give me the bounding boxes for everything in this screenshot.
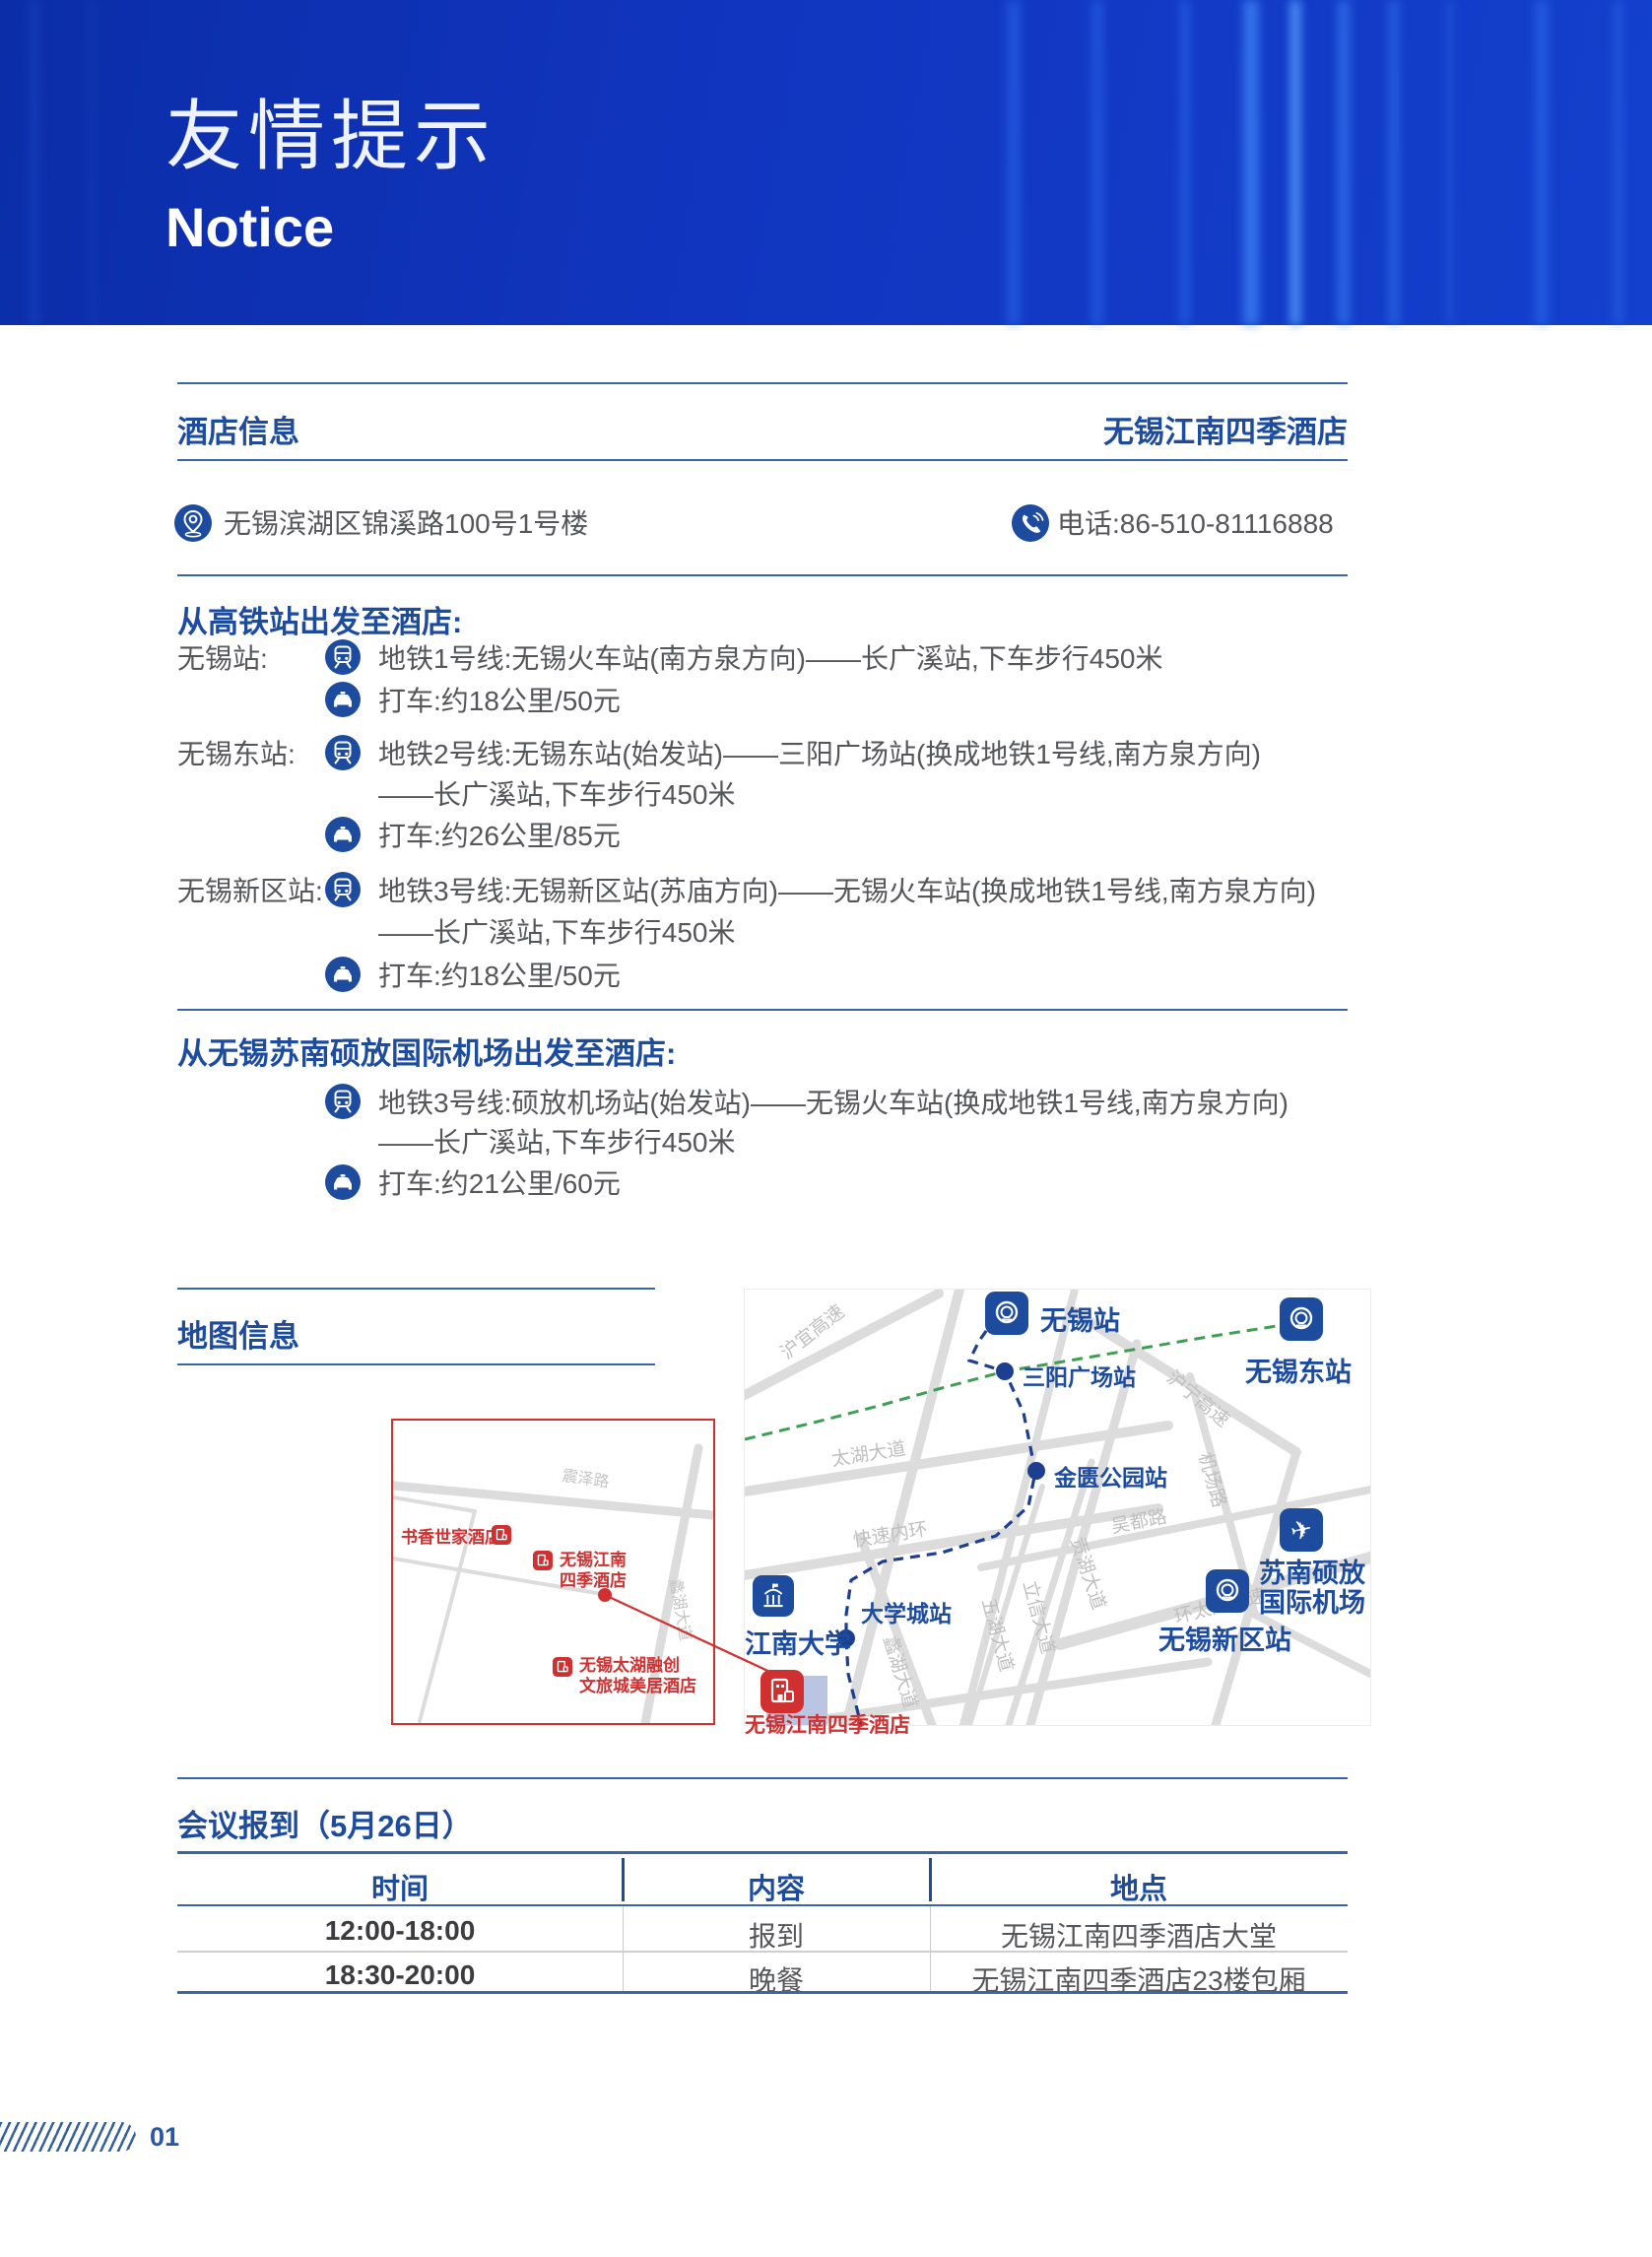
poi-label: 四季酒店 [560,1570,627,1591]
divider [177,1288,655,1290]
railway-station-icon [1206,1569,1249,1613]
university-icon [753,1575,794,1617]
table-header-border [177,1904,1348,1906]
banner-streak [1091,0,1103,325]
station-label: 金匮公园站 [1054,1459,1167,1493]
banner-streak [1535,0,1549,325]
route-step: 地铁3号线:硕放机场站(始发站)——无锡火车站(换成地铁1号线,南方泉方向) [378,1086,1289,1121]
table-cell: 报到 [623,1915,930,1955]
poi-label: 书香世家酒店 [401,1527,501,1548]
banner-streak [1243,0,1259,325]
railway-station-icon [985,1292,1028,1335]
route-step: ——长广溪站,下车步行450米 [378,1125,736,1161]
station-name: 无锡东站: [177,737,296,772]
airplane-icon: ✈ [1280,1508,1323,1552]
divider [177,382,1348,384]
banner-streak [89,0,95,325]
divider [177,1777,1348,1779]
table-cell: 12:00-18:00 [177,1915,623,1947]
table-cell: 18:30-20:00 [177,1959,623,1991]
page-number: 01 [150,2122,179,2153]
railway-station-icon [1280,1297,1323,1341]
divider [177,574,1348,576]
station-name: 无锡站: [177,641,268,677]
banner-streak [1614,0,1623,325]
poi-label: 国际机场 [1259,1581,1365,1620]
hotel-marker-icon [553,1657,572,1677]
poi-label: 无锡太湖融创 [579,1655,680,1676]
route-step: ——长广溪站,下车步行450米 [378,777,736,813]
rail-section-title: 从高铁站出发至酒店: [177,597,462,641]
notice-page: 友情提示 Notice 酒店信息 无锡江南四季酒店 无锡滨湖区锦溪路100号1号… [0,0,1652,2257]
hotel-phone: 电话:86-510-81116888 [1057,506,1334,542]
station-name: 无锡新区站: [177,874,323,909]
route-step: 打车:约21公里/60元 [378,1166,621,1202]
metro-icon [325,1084,361,1119]
table-cell: 无锡江南四季酒店大堂 [930,1915,1348,1955]
table-top-border [177,1851,1348,1854]
station-label: 三阳广场站 [1023,1359,1136,1392]
banner-streak [1389,0,1399,325]
station-label: 无锡东站 [1245,1351,1352,1389]
page-subtitle: Notice [165,195,334,259]
location-pin-icon [174,504,212,542]
metro-icon [325,735,361,770]
banner-streak [1290,0,1300,325]
hotel-marker-icon [533,1551,553,1570]
banner-streak [30,0,39,325]
poi-label: 无锡江南 [560,1550,627,1570]
route-step: 地铁1号线:无锡火车站(南方泉方向)——长广溪站,下车步行450米 [378,641,1163,677]
banner-streak [1007,0,1021,325]
route-step: 打车:约18公里/50元 [378,684,621,719]
taxi-icon [325,957,361,992]
map-section-title: 地图信息 [177,1311,299,1356]
taxi-icon [325,817,361,852]
station-label: 无锡站 [1040,1299,1120,1338]
route-step: 地铁3号线:无锡新区站(苏庙方向)——无锡火车站(换成地铁1号线,南方泉方向) [378,874,1316,909]
metro-icon [325,639,361,675]
row-divider [177,1951,1348,1953]
hotel-label: 无锡江南四季酒店 [745,1709,910,1739]
station-label: 无锡新区站 [1158,1619,1291,1657]
hotel-info-title: 酒店信息 [177,407,299,451]
col-header-content: 内容 [623,1866,930,1907]
col-header-time: 时间 [177,1866,623,1907]
station-label: 大学城站 [861,1595,952,1628]
route-step: 打车:约18公里/50元 [378,959,621,994]
taxi-icon [325,682,361,717]
route-step: ——长广溪站,下车步行450米 [378,915,736,951]
metro-icon [325,872,361,907]
hotel-inset-map: 震泽路 蠡湖大道 书香世家酒店 无锡江南 四季酒店 无锡太湖融创 文旅城美居酒店 [391,1419,715,1725]
airport-section-title: 从无锡苏南硕放国际机场出发至酒店: [177,1029,676,1073]
banner-streak [1446,0,1454,325]
hotel-marker-icon [492,1525,511,1545]
hotel-location-dot [598,1588,612,1602]
header-banner: 友情提示 Notice [0,0,1652,325]
route-step: 打车:约26公里/85元 [378,819,621,854]
hotel-address: 无锡滨湖区锦溪路100号1号楼 [224,506,588,542]
footer-decoration [0,2122,136,2152]
route-step: 地铁2号线:无锡东站(始发站)——三阳广场站(换成地铁1号线,南方泉方向) [378,737,1261,772]
hotel-marker-icon [760,1670,804,1713]
city-map: 沪宜高速 太湖大道 快速内环 沪宁高速 机场路 贡湖大道 吴都路 五湖大道 立信… [744,1289,1371,1726]
divider [177,1363,655,1365]
taxi-icon [325,1164,361,1200]
banner-streak [1338,0,1350,325]
banner-streak [1180,0,1190,325]
table-bottom-border [177,1991,1348,1994]
phone-icon [1012,504,1049,542]
page-title: 友情提示 [165,75,496,185]
meeting-title: 会议报到（5月26日） [177,1801,473,1845]
header-separator [622,1858,625,1901]
poi-label: 江南大学 [745,1623,851,1661]
divider [177,459,1348,461]
divider [177,1009,1348,1011]
col-header-place: 地点 [930,1866,1348,1907]
poi-label: 文旅城美居酒店 [579,1676,696,1696]
header-separator [929,1858,932,1901]
hotel-name: 无锡江南四季酒店 [1103,407,1348,451]
